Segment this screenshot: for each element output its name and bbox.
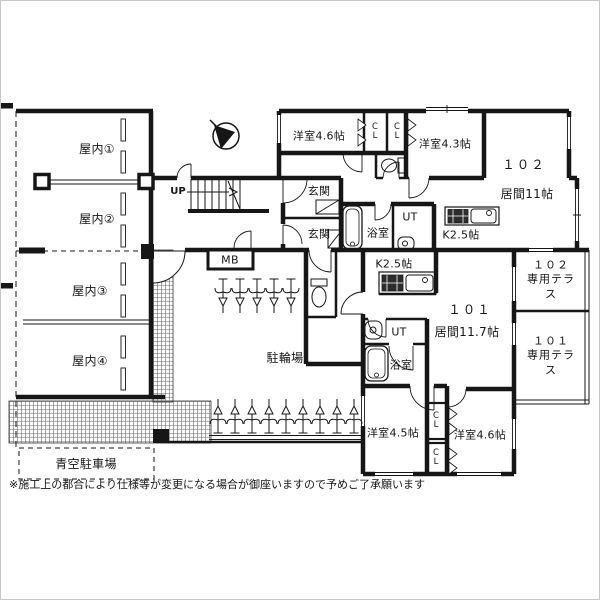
floorplan-drawing: [1, 1, 600, 601]
label-living-102: 居間11帖: [501, 188, 554, 200]
staircase: [187, 179, 269, 211]
bicycle-icon: [232, 279, 248, 313]
label-closet-101b: CL: [431, 449, 441, 467]
disclaimer-text: ※施工上の都合により仕様等が変更になる場合が御座いますので予めご了承願います: [9, 479, 425, 490]
bicycle-icon: [283, 279, 299, 313]
label-room45-101: 洋室4.5帖: [367, 428, 419, 439]
bathtub-icon-102: [343, 206, 362, 249]
label-stairs-up: UP: [170, 187, 185, 197]
label-terrace-102: １０２ 専用テラス: [527, 259, 575, 302]
label-kitchen-102: K2.5帖: [442, 230, 479, 241]
bicycle-icon: [329, 399, 345, 433]
toilet-icon-102: [382, 158, 406, 173]
label-room46-102: 洋室4.6帖: [293, 131, 345, 142]
kitchen-counter-102: [445, 207, 499, 225]
label-closet-102a: CL: [370, 123, 380, 141]
kitchen-counter-101: [379, 272, 436, 294]
label-unit-102: １０２: [502, 159, 546, 172]
label-bike-parking: 駐輪場: [267, 352, 304, 364]
bicycle-icon: [215, 279, 231, 313]
label-ut-102: UT: [402, 212, 417, 223]
bicycle-icon: [346, 399, 362, 433]
label-kitchen-101: K2.5帖: [375, 259, 412, 270]
label-ut-101: UT: [391, 327, 406, 338]
label-open-parking: 青空駐車場: [55, 458, 117, 470]
north-arrow-icon: [210, 120, 239, 149]
label-closet-101a: CL: [431, 412, 441, 430]
label-garage-3: 屋内③: [72, 285, 108, 297]
bicycle-icon: [244, 399, 260, 433]
bicycle-icon: [249, 279, 265, 313]
bicycle-icon: [278, 399, 294, 433]
label-room46-101: 洋室4.6帖: [454, 430, 506, 441]
parking-centre-marks: [121, 119, 126, 390]
label-closet-102b: CL: [392, 123, 402, 141]
toilet-icon-101: [311, 279, 327, 307]
bicycle-icon: [261, 399, 277, 433]
label-meter-box: MB: [221, 255, 239, 266]
floorplan-page: 屋内① 屋内② 屋内③ 屋内④ 青空駐車場 駐輪場 MB UP 玄関 玄関 洋室…: [0, 0, 600, 600]
label-room43-102: 洋室4.3帖: [419, 139, 471, 150]
shoe-cabinets: [316, 200, 342, 248]
label-entrance-101: 玄関: [308, 229, 331, 240]
bicycle-icon: [266, 279, 282, 313]
label-living-101: 居間11.7帖: [435, 326, 500, 338]
bicycle-icon: [227, 399, 243, 433]
bicycle-icon: [295, 399, 311, 433]
bathtub-icon-101: [365, 346, 388, 381]
label-unit-101: １０１: [448, 304, 492, 317]
label-garage-2: 屋内②: [79, 213, 115, 225]
label-bath-102: 浴室: [367, 228, 390, 239]
label-bath-101: 浴室: [390, 360, 413, 371]
bicycle-icon: [312, 399, 328, 433]
bicycle-icon: [210, 399, 226, 433]
label-garage-1: 屋内①: [79, 143, 115, 155]
label-garage-4: 屋内④: [72, 355, 108, 367]
label-entrance-102: 玄関: [308, 186, 331, 197]
label-terrace-101: １０１ 専用テラス: [527, 335, 575, 378]
hatched-walkways: [9, 250, 211, 443]
